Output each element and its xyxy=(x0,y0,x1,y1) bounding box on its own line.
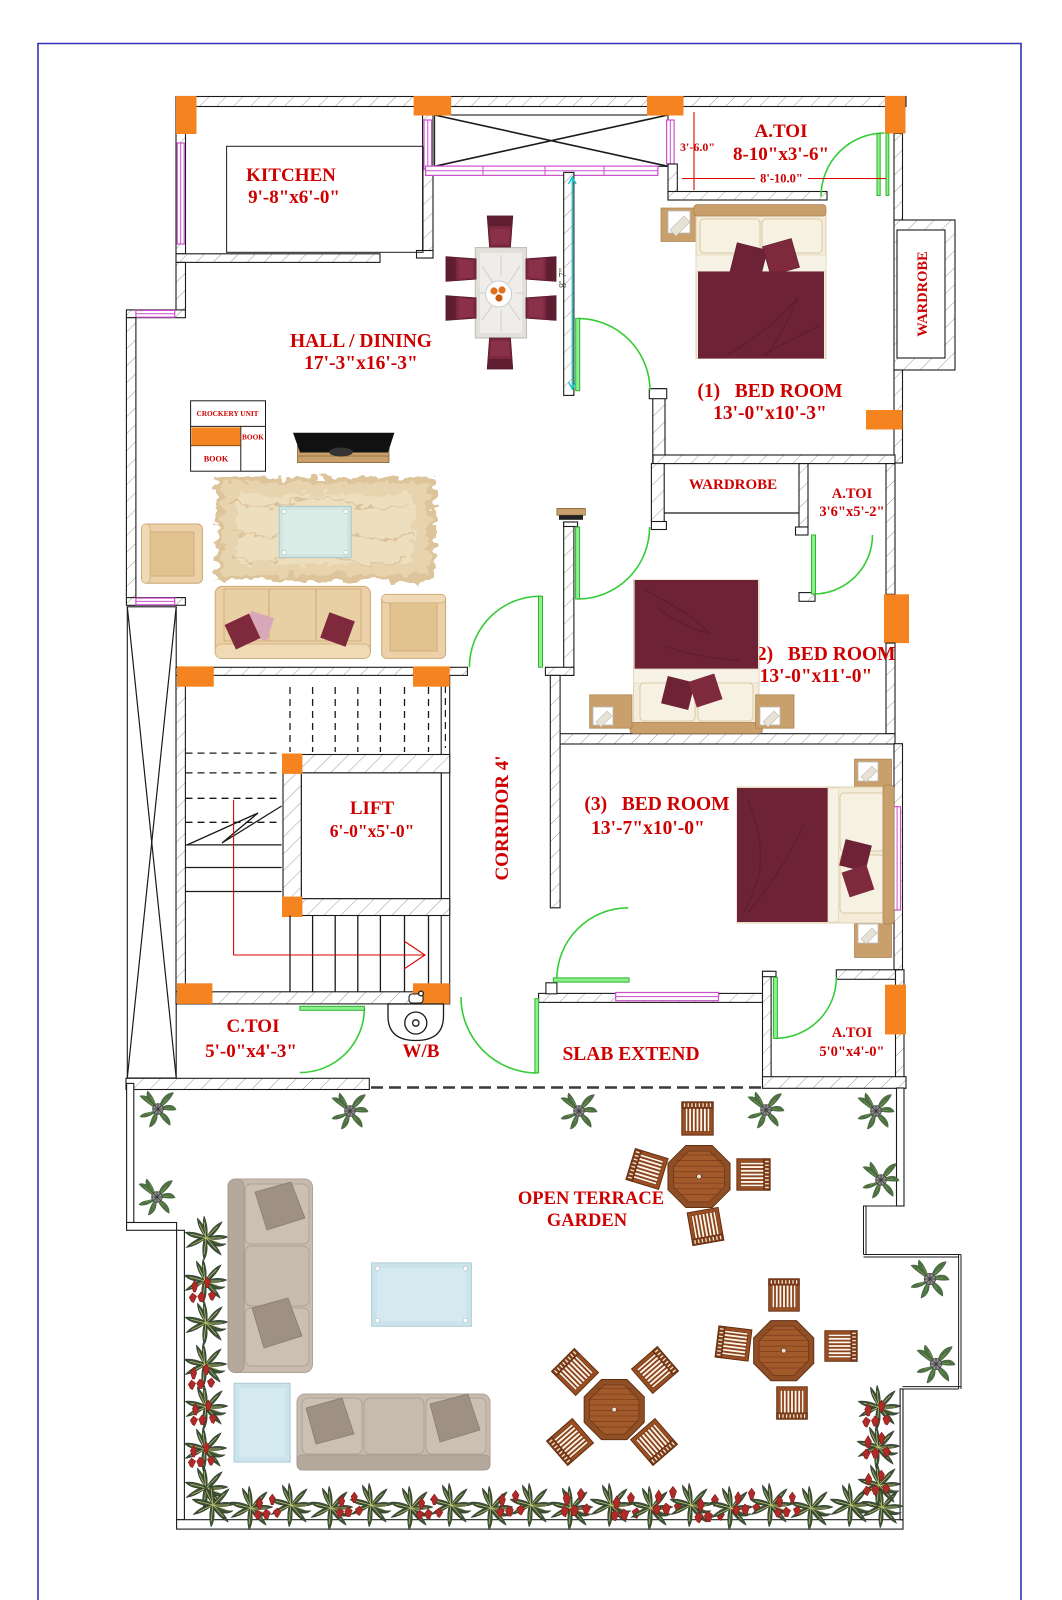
svg-text:5'0"x4'-0": 5'0"x4'-0" xyxy=(819,1044,884,1060)
svg-text:6'-0"x5'-0": 6'-0"x5'-0" xyxy=(330,821,415,841)
svg-text:8'-7": 8'-7" xyxy=(558,268,569,288)
svg-text:CROCKERY UNIT: CROCKERY UNIT xyxy=(196,409,258,418)
svg-text:3'6"x5'-2": 3'6"x5'-2" xyxy=(819,504,884,520)
svg-text:13'-0"x10'-3": 13'-0"x10'-3" xyxy=(713,403,827,424)
svg-text:17'-3"x16'-3": 17'-3"x16'-3" xyxy=(304,353,418,374)
svg-text:SLAB EXTEND: SLAB EXTEND xyxy=(562,1044,699,1065)
svg-text:(3) BED ROOM: (3) BED ROOM xyxy=(584,794,729,815)
svg-text:8-10"x3'-6": 8-10"x3'-6" xyxy=(733,144,829,165)
svg-text:LIFT: LIFT xyxy=(350,798,395,819)
svg-text:8'-10.0": 8'-10.0" xyxy=(760,172,803,186)
svg-text:9'-8"x6'-0": 9'-8"x6'-0" xyxy=(248,187,340,208)
svg-text:13'-0"x11'-0": 13'-0"x11'-0" xyxy=(760,666,873,687)
svg-text:(2) BED ROOM: (2) BED ROOM xyxy=(750,644,895,665)
svg-text:C.TOI: C.TOI xyxy=(227,1016,280,1037)
svg-text:(1) BED ROOM: (1) BED ROOM xyxy=(697,381,842,402)
svg-text:GARDEN: GARDEN xyxy=(547,1211,628,1231)
svg-text:WARDROBE: WARDROBE xyxy=(915,251,931,336)
svg-text:13'-7"x10'-0": 13'-7"x10'-0" xyxy=(591,818,705,839)
svg-text:KITCHEN: KITCHEN xyxy=(246,165,336,186)
svg-text:A.TOI: A.TOI xyxy=(832,486,873,502)
svg-text:BOOK: BOOK xyxy=(242,433,264,442)
svg-text:A.TOI: A.TOI xyxy=(832,1025,873,1041)
svg-text:3'-6.0": 3'-6.0" xyxy=(680,140,715,154)
svg-text:CORRIDOR 4': CORRIDOR 4' xyxy=(492,755,513,880)
svg-text:BOOK: BOOK xyxy=(204,455,229,464)
svg-text:HALL / DINING: HALL / DINING xyxy=(290,331,432,352)
svg-text:OPEN TERRACE: OPEN TERRACE xyxy=(518,1189,664,1209)
svg-text:WARDROBE: WARDROBE xyxy=(689,477,777,493)
svg-text:W/B: W/B xyxy=(403,1041,440,1062)
svg-text:A.TOI: A.TOI xyxy=(755,121,808,142)
svg-text:5'-0"x4'-3": 5'-0"x4'-3" xyxy=(205,1041,297,1062)
